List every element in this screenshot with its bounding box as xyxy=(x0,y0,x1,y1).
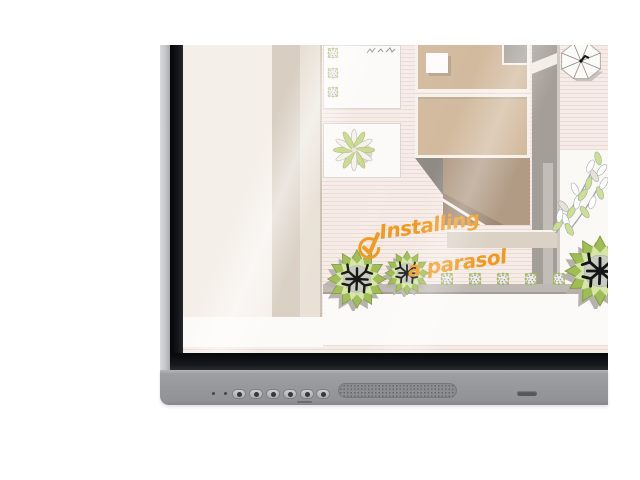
plan-note-scribble xyxy=(366,46,396,56)
bush-icon xyxy=(327,47,339,59)
panel-button-1[interactable] xyxy=(232,389,246,399)
garden-wall xyxy=(272,45,322,320)
bezel-bottom xyxy=(170,353,608,370)
planter-bed xyxy=(323,123,401,178)
hedge-planter-icon xyxy=(496,272,510,286)
house-closet xyxy=(502,45,527,65)
house-room-top xyxy=(415,45,530,92)
panel-button-5[interactable] xyxy=(300,389,314,399)
panel-button-4[interactable] xyxy=(283,389,297,399)
frame-left-edge xyxy=(160,45,170,370)
panel-button-2[interactable] xyxy=(249,389,263,399)
table-icon xyxy=(426,53,448,73)
frame-bottom xyxy=(160,370,608,405)
hedge-planter-icon xyxy=(524,272,538,286)
patio-area xyxy=(183,45,272,320)
round-tree-icon xyxy=(562,233,608,309)
speaker-grille xyxy=(338,383,457,398)
panel-button-3[interactable] xyxy=(266,389,280,399)
agave-plant-icon xyxy=(330,126,378,174)
product-photo-canvas: { "canvas": {"background": "#ffffff"}, "… xyxy=(0,0,640,480)
path-band xyxy=(183,317,323,347)
button-label-mark xyxy=(297,401,312,403)
leaf-shrub-icon xyxy=(546,145,608,237)
parasol-icon xyxy=(558,45,604,84)
panel-button-6[interactable] xyxy=(316,389,330,399)
bush-icon xyxy=(327,86,339,98)
hedge-planter-icon xyxy=(468,272,482,286)
interactive-flat-panel: Installing a parasol xyxy=(160,45,608,405)
bush-icon xyxy=(327,67,339,79)
touch-screen[interactable]: Installing a parasol xyxy=(183,45,608,353)
mic-dot xyxy=(224,392,227,395)
bezel-left xyxy=(170,45,183,370)
house-room-middle xyxy=(415,94,530,158)
mic-dot xyxy=(212,392,215,395)
status-slot xyxy=(517,391,537,396)
